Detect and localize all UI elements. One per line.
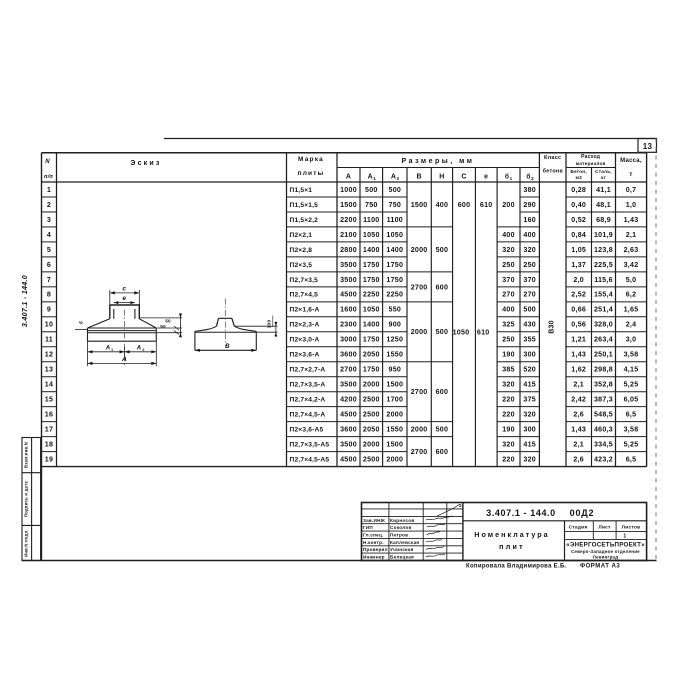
svg-text:2: 2 bbox=[531, 176, 534, 181]
svg-text:П2×2,8: П2×2,8 bbox=[290, 247, 313, 254]
svg-text:Учинская: Учинская bbox=[390, 547, 414, 552]
svg-text:2,1: 2,1 bbox=[626, 231, 637, 239]
svg-text:352,8: 352,8 bbox=[594, 381, 613, 389]
svg-text:430: 430 bbox=[523, 321, 536, 329]
svg-text:2050: 2050 bbox=[363, 426, 380, 434]
svg-text:п/п: п/п bbox=[44, 174, 53, 180]
svg-text:460,3: 460,3 bbox=[594, 426, 613, 434]
svg-text:2000: 2000 bbox=[386, 456, 403, 464]
svg-text:220: 220 bbox=[502, 396, 515, 404]
svg-text:4500: 4500 bbox=[340, 411, 357, 419]
svg-text:400: 400 bbox=[502, 231, 515, 239]
svg-text:10: 10 bbox=[45, 321, 53, 329]
svg-text:2,4: 2,4 bbox=[626, 321, 637, 329]
svg-text:бетона: бетона bbox=[543, 168, 564, 175]
svg-text:1,43: 1,43 bbox=[571, 426, 586, 434]
svg-text:500: 500 bbox=[436, 426, 449, 434]
svg-text:610: 610 bbox=[480, 201, 493, 209]
svg-text:2,6: 2,6 bbox=[573, 411, 584, 419]
svg-text:П2,7×4,5-А: П2,7×4,5-А bbox=[290, 412, 326, 419]
svg-text:50: 50 bbox=[160, 324, 166, 329]
svg-text:355: 355 bbox=[523, 336, 536, 344]
svg-text:320: 320 bbox=[502, 246, 515, 254]
svg-text:1100: 1100 bbox=[387, 216, 403, 224]
svg-text:600: 600 bbox=[436, 448, 449, 456]
svg-text:5,25: 5,25 bbox=[624, 381, 639, 389]
svg-text:400: 400 bbox=[523, 231, 536, 239]
svg-text:400: 400 bbox=[436, 201, 449, 209]
svg-text:415: 415 bbox=[523, 441, 536, 449]
svg-text:2,1: 2,1 bbox=[573, 441, 584, 449]
svg-text:290: 290 bbox=[523, 201, 536, 209]
svg-text:520: 520 bbox=[523, 366, 536, 374]
svg-text:270: 270 bbox=[502, 291, 515, 299]
svg-text:2,42: 2,42 bbox=[571, 396, 586, 404]
svg-text:115,6: 115,6 bbox=[594, 276, 613, 284]
svg-text:13: 13 bbox=[643, 142, 653, 151]
svg-text:Масса,: Масса, bbox=[620, 158, 642, 164]
svg-text:Северо-Западное отделение: Северо-Западное отделение bbox=[571, 549, 640, 554]
svg-text:320: 320 bbox=[502, 381, 515, 389]
svg-text:1550: 1550 bbox=[386, 426, 403, 434]
svg-text:3.407.1 - 144.0: 3.407.1 - 144.0 bbox=[20, 275, 29, 327]
svg-text:Гл.спец.: Гл.спец. bbox=[363, 532, 384, 537]
svg-text:A: A bbox=[391, 174, 396, 181]
svg-text:2000: 2000 bbox=[411, 246, 428, 254]
svg-text:Расход: Расход bbox=[581, 154, 601, 160]
svg-text:3.407.1 - 144.0: 3.407.1 - 144.0 bbox=[486, 508, 556, 518]
svg-text:П2×1,6-А: П2×1,6-А bbox=[290, 307, 320, 314]
svg-text:«ЭНЕРГОСЕТЬПРОЕКТ»: «ЭНЕРГОСЕТЬПРОЕКТ» bbox=[566, 542, 645, 549]
svg-text:1,65: 1,65 bbox=[624, 306, 639, 314]
svg-text:2500: 2500 bbox=[363, 411, 380, 419]
svg-text:1,05: 1,05 bbox=[571, 246, 586, 254]
svg-text:плиты: плиты bbox=[298, 170, 325, 177]
svg-text:225,5: 225,5 bbox=[594, 261, 613, 269]
svg-text:6,05: 6,05 bbox=[624, 396, 639, 404]
svg-text:4500: 4500 bbox=[340, 456, 357, 464]
svg-text:Листов: Листов bbox=[622, 525, 641, 531]
svg-text:220: 220 bbox=[502, 456, 515, 464]
svg-text:50: 50 bbox=[165, 319, 171, 324]
svg-text:2200: 2200 bbox=[340, 216, 357, 224]
svg-text:13: 13 bbox=[45, 366, 53, 374]
svg-text:1: 1 bbox=[47, 186, 51, 194]
svg-text:600: 600 bbox=[458, 201, 471, 209]
svg-text:2700: 2700 bbox=[411, 283, 428, 291]
svg-text:423,2: 423,2 bbox=[594, 456, 613, 464]
svg-text:Каплевская: Каплевская bbox=[390, 540, 419, 545]
svg-text:Лист: Лист bbox=[598, 525, 611, 531]
svg-text:5,0: 5,0 bbox=[626, 276, 637, 284]
svg-text:2: 2 bbox=[397, 176, 400, 181]
svg-text:387,3: 387,3 bbox=[594, 396, 613, 404]
svg-text:2500: 2500 bbox=[363, 396, 380, 404]
svg-text:190: 190 bbox=[502, 351, 515, 359]
svg-text:3,58: 3,58 bbox=[624, 351, 639, 359]
svg-text:1750: 1750 bbox=[363, 276, 380, 284]
svg-text:11: 11 bbox=[45, 336, 53, 344]
svg-text:Класс: Класс bbox=[544, 155, 561, 161]
svg-text:1700: 1700 bbox=[386, 396, 403, 404]
svg-text:1050: 1050 bbox=[363, 231, 380, 239]
svg-text:2,52: 2,52 bbox=[571, 291, 586, 299]
svg-text:H: H bbox=[439, 174, 444, 181]
svg-text:П2,7×4,2-А: П2,7×4,2-А bbox=[290, 397, 326, 404]
svg-text:e: e bbox=[484, 174, 488, 181]
svg-text:68,9: 68,9 bbox=[596, 216, 611, 224]
svg-text:500: 500 bbox=[436, 328, 449, 336]
svg-text:250: 250 bbox=[502, 336, 515, 344]
svg-text:т: т bbox=[629, 172, 632, 178]
svg-text:250: 250 bbox=[523, 261, 536, 269]
svg-text:415: 415 bbox=[523, 381, 536, 389]
svg-text:250: 250 bbox=[502, 261, 515, 269]
svg-text:П2×3,6-А5: П2×3,6-А5 bbox=[290, 427, 324, 434]
svg-text:00Д2: 00Д2 bbox=[570, 508, 595, 518]
svg-text:B: B bbox=[416, 174, 421, 181]
svg-text:П1,5×2,2: П1,5×2,2 bbox=[290, 217, 319, 224]
svg-text:В: В bbox=[225, 343, 230, 350]
svg-text:2700: 2700 bbox=[411, 388, 428, 396]
svg-text:14: 14 bbox=[45, 381, 53, 389]
svg-text:1,37: 1,37 bbox=[571, 261, 586, 269]
svg-text:1100: 1100 bbox=[363, 216, 379, 224]
svg-text:Стадия: Стадия bbox=[569, 525, 588, 531]
svg-text:1,21: 1,21 bbox=[571, 336, 586, 344]
svg-text:e: e bbox=[122, 295, 126, 302]
svg-text:2000: 2000 bbox=[411, 426, 428, 434]
svg-text:C: C bbox=[461, 174, 466, 181]
svg-text:П1,5×1: П1,5×1 bbox=[290, 187, 313, 194]
svg-text:2000: 2000 bbox=[363, 441, 380, 449]
svg-text:2050: 2050 bbox=[363, 351, 380, 359]
svg-text:17: 17 bbox=[45, 426, 53, 434]
svg-text:160: 160 bbox=[523, 216, 536, 224]
svg-text:1550: 1550 bbox=[386, 351, 403, 359]
svg-text:П2×3,6-А: П2×3,6-А bbox=[290, 352, 320, 359]
svg-text:ФОРМАТ А3: ФОРМАТ А3 bbox=[580, 564, 620, 570]
svg-text:1750: 1750 bbox=[386, 261, 403, 269]
svg-text:2500: 2500 bbox=[363, 456, 380, 464]
svg-text:4500: 4500 bbox=[340, 291, 357, 299]
svg-text:1000: 1000 bbox=[340, 186, 357, 194]
svg-text:8: 8 bbox=[47, 291, 51, 299]
svg-text:1050: 1050 bbox=[453, 328, 470, 336]
svg-text:328,0: 328,0 bbox=[594, 321, 613, 329]
svg-text:5: 5 bbox=[47, 246, 51, 254]
svg-text:П2×2,3-А: П2×2,3-А bbox=[290, 322, 320, 329]
svg-text:16: 16 bbox=[45, 411, 53, 419]
svg-text:320: 320 bbox=[523, 411, 536, 419]
svg-text:б: б bbox=[526, 173, 530, 181]
svg-text:Сталь,: Сталь, bbox=[595, 169, 612, 174]
svg-text:250,1: 250,1 bbox=[594, 351, 613, 359]
svg-text:550: 550 bbox=[389, 306, 402, 314]
svg-text:Номенклатура: Номенклатура bbox=[474, 530, 549, 539]
svg-text:3600: 3600 bbox=[340, 351, 357, 359]
svg-text:3500: 3500 bbox=[340, 381, 357, 389]
svg-text:3600: 3600 bbox=[340, 426, 357, 434]
svg-text:251,4: 251,4 bbox=[594, 306, 613, 314]
svg-text:1500: 1500 bbox=[386, 381, 403, 389]
svg-text:N: N bbox=[45, 159, 50, 165]
svg-text:Петров: Петров bbox=[390, 532, 408, 537]
svg-text:0,52: 0,52 bbox=[571, 216, 586, 224]
svg-text:Зав.ИНЖ: Зав.ИНЖ bbox=[363, 518, 386, 523]
svg-text:Эскиз: Эскиз bbox=[130, 160, 161, 167]
svg-text:2: 2 bbox=[47, 201, 51, 209]
svg-text:1400: 1400 bbox=[363, 321, 380, 329]
svg-text:500: 500 bbox=[523, 306, 536, 314]
svg-text:2000: 2000 bbox=[363, 381, 380, 389]
svg-text:3500: 3500 bbox=[340, 441, 357, 449]
svg-text:190: 190 bbox=[502, 426, 515, 434]
svg-text:12: 12 bbox=[45, 351, 53, 359]
svg-text:2000: 2000 bbox=[411, 328, 428, 336]
svg-text:2800: 2800 bbox=[340, 246, 357, 254]
svg-text:П2,7×4,5-А5: П2,7×4,5-А5 bbox=[290, 457, 330, 464]
svg-text:298,8: 298,8 bbox=[594, 366, 613, 374]
svg-text:кг: кг bbox=[601, 175, 606, 180]
svg-text:2000: 2000 bbox=[386, 411, 403, 419]
svg-text:123,8: 123,8 bbox=[594, 246, 613, 254]
svg-text:155,4: 155,4 bbox=[594, 291, 613, 299]
svg-text:1500: 1500 bbox=[386, 441, 403, 449]
svg-text:2100: 2100 bbox=[340, 231, 357, 239]
svg-text:600: 600 bbox=[436, 283, 449, 291]
svg-text:В30: В30 bbox=[549, 320, 556, 334]
svg-text:610: 610 bbox=[477, 328, 490, 336]
svg-text:548,5: 548,5 bbox=[594, 411, 613, 419]
svg-text:101,9: 101,9 bbox=[594, 231, 613, 239]
svg-text:900: 900 bbox=[389, 321, 402, 329]
svg-text:1600: 1600 bbox=[340, 306, 357, 314]
svg-text:A: A bbox=[346, 174, 351, 181]
svg-text:0,7: 0,7 bbox=[626, 186, 637, 194]
svg-text:270: 270 bbox=[523, 291, 536, 299]
svg-text:15: 15 bbox=[45, 396, 53, 404]
svg-text:1,43: 1,43 bbox=[624, 216, 639, 224]
svg-text:263,4: 263,4 bbox=[594, 336, 613, 344]
svg-text:19: 19 bbox=[45, 456, 53, 464]
svg-text:П2,7×3,5: П2,7×3,5 bbox=[290, 277, 319, 284]
svg-text:3500: 3500 bbox=[340, 276, 357, 284]
svg-text:375: 375 bbox=[523, 396, 536, 404]
svg-text:320: 320 bbox=[523, 456, 536, 464]
svg-text:1: 1 bbox=[510, 176, 513, 181]
svg-text:П2×3,5: П2×3,5 bbox=[290, 262, 313, 269]
svg-text:220: 220 bbox=[502, 411, 515, 419]
svg-text:6,5: 6,5 bbox=[626, 411, 637, 419]
svg-text:3000: 3000 bbox=[340, 336, 357, 344]
svg-text:П2,7×3,5-А: П2,7×3,5-А bbox=[290, 382, 326, 389]
svg-text:6,2: 6,2 bbox=[626, 291, 637, 299]
svg-text:400: 400 bbox=[502, 306, 515, 314]
svg-text:300: 300 bbox=[523, 426, 536, 434]
svg-text:320: 320 bbox=[502, 441, 515, 449]
svg-text:2700: 2700 bbox=[340, 366, 357, 374]
svg-text:Подпись и дата: Подпись и дата bbox=[23, 481, 28, 517]
svg-text:П2×3,0-А: П2×3,0-А bbox=[290, 337, 320, 344]
svg-text:385: 385 bbox=[502, 366, 515, 374]
svg-text:3,58: 3,58 bbox=[624, 426, 639, 434]
svg-text:4200: 4200 bbox=[340, 396, 357, 404]
svg-text:1750: 1750 bbox=[386, 276, 403, 284]
svg-text:370: 370 bbox=[502, 276, 515, 284]
svg-text:370: 370 bbox=[523, 276, 536, 284]
svg-text:320: 320 bbox=[523, 246, 536, 254]
svg-text:1750: 1750 bbox=[363, 261, 380, 269]
svg-text:4: 4 bbox=[47, 231, 51, 239]
svg-text:1050: 1050 bbox=[363, 306, 380, 314]
svg-text:1250: 1250 bbox=[386, 336, 403, 344]
svg-text:0,56: 0,56 bbox=[571, 321, 586, 329]
svg-text:б: б bbox=[505, 173, 509, 181]
svg-text:2,0: 2,0 bbox=[573, 276, 584, 284]
svg-text:41,1: 41,1 bbox=[596, 186, 611, 194]
svg-text:1050: 1050 bbox=[386, 231, 403, 239]
svg-text:Марка: Марка bbox=[298, 156, 324, 163]
svg-text:П2,7×3,5-А5: П2,7×3,5-А5 bbox=[290, 442, 330, 449]
svg-text:6,5: 6,5 bbox=[626, 456, 637, 464]
svg-text:6: 6 bbox=[47, 261, 51, 269]
svg-text:Соколов: Соколов bbox=[390, 525, 412, 530]
svg-text:1,62: 1,62 bbox=[571, 366, 586, 374]
svg-text:c: c bbox=[122, 285, 126, 292]
svg-text:500: 500 bbox=[436, 246, 449, 254]
svg-text:2300: 2300 bbox=[340, 321, 357, 329]
svg-text:1750: 1750 bbox=[363, 336, 380, 344]
svg-text:Н.контр.: Н.контр. bbox=[363, 540, 384, 545]
svg-text:Инв.N подл.: Инв.N подл. bbox=[23, 529, 28, 557]
svg-text:2250: 2250 bbox=[363, 291, 380, 299]
svg-text:А: А bbox=[121, 356, 127, 363]
svg-text:3: 3 bbox=[47, 216, 51, 224]
svg-text:1400: 1400 bbox=[386, 246, 403, 254]
svg-text:7: 7 bbox=[47, 276, 51, 284]
svg-text:300: 300 bbox=[523, 351, 536, 359]
svg-text:Белецкая: Белецкая bbox=[390, 554, 414, 559]
svg-text:0,66: 0,66 bbox=[571, 306, 586, 314]
svg-text:334,5: 334,5 bbox=[594, 441, 613, 449]
svg-text:0,40: 0,40 bbox=[571, 201, 586, 209]
svg-text:500: 500 bbox=[365, 186, 378, 194]
svg-text:плит: плит bbox=[499, 542, 525, 551]
svg-text:0,84: 0,84 bbox=[571, 231, 586, 239]
svg-text:Ленинград: Ленинград bbox=[593, 554, 619, 559]
svg-text:2,63: 2,63 bbox=[624, 246, 639, 254]
svg-text:Проверил: Проверил bbox=[363, 547, 388, 552]
svg-text:1,43: 1,43 bbox=[571, 351, 586, 359]
svg-text:1500: 1500 bbox=[411, 201, 428, 209]
svg-text:ГИП: ГИП bbox=[363, 525, 373, 530]
svg-text:750: 750 bbox=[389, 201, 402, 209]
svg-text:м3: м3 bbox=[575, 175, 582, 180]
svg-text:1: 1 bbox=[623, 534, 626, 540]
svg-text:750: 750 bbox=[365, 201, 378, 209]
svg-text:A: A bbox=[368, 174, 373, 181]
svg-text:100: 100 bbox=[267, 320, 273, 329]
svg-text:А: А bbox=[136, 344, 142, 351]
svg-text:Бетон,: Бетон, bbox=[571, 169, 587, 174]
svg-text:1750: 1750 bbox=[363, 366, 380, 374]
svg-text:500: 500 bbox=[389, 186, 402, 194]
svg-text:1500: 1500 bbox=[340, 201, 357, 209]
svg-text:2,6: 2,6 bbox=[573, 456, 584, 464]
svg-text:Инженер: Инженер bbox=[363, 554, 385, 559]
svg-text:2700: 2700 bbox=[411, 448, 428, 456]
svg-text:950: 950 bbox=[389, 366, 402, 374]
svg-text:325: 325 bbox=[502, 321, 515, 329]
svg-text:П1,5×1,5: П1,5×1,5 bbox=[290, 202, 319, 209]
svg-text:18: 18 bbox=[45, 441, 53, 449]
svg-text:Копировала Владимирова Е.Б.: Копировала Владимирова Е.Б. bbox=[466, 564, 567, 570]
svg-text:48,1: 48,1 bbox=[596, 201, 611, 209]
svg-text:Взам.инв.N: Взам.инв.N bbox=[23, 442, 28, 468]
svg-text:1,0: 1,0 bbox=[626, 201, 637, 209]
svg-text:1: 1 bbox=[373, 176, 376, 181]
svg-text:А: А bbox=[105, 344, 111, 351]
svg-text:Размеры, мм: Размеры, мм bbox=[402, 158, 475, 165]
svg-text:2,1: 2,1 bbox=[573, 381, 584, 389]
svg-text:4,15: 4,15 bbox=[624, 366, 639, 374]
svg-text:П2×2,1: П2×2,1 bbox=[290, 232, 313, 239]
svg-text:600: 600 bbox=[436, 388, 449, 396]
svg-text:2250: 2250 bbox=[386, 291, 403, 299]
svg-text:5,25: 5,25 bbox=[624, 441, 639, 449]
svg-text:200: 200 bbox=[502, 201, 515, 209]
svg-text:материалов: материалов bbox=[576, 161, 606, 166]
svg-text:3500: 3500 bbox=[340, 261, 357, 269]
svg-text:3,0: 3,0 bbox=[626, 336, 637, 344]
svg-text:Кирносов: Кирносов bbox=[390, 518, 415, 523]
svg-text:П2,7×2,7-А: П2,7×2,7-А bbox=[290, 367, 326, 374]
svg-text:1400: 1400 bbox=[363, 246, 380, 254]
svg-text:3,42: 3,42 bbox=[624, 261, 639, 269]
svg-text:380: 380 bbox=[523, 186, 536, 194]
svg-text:9: 9 bbox=[47, 306, 51, 314]
svg-text:0,28: 0,28 bbox=[571, 186, 586, 194]
svg-text:П2,7×4,5: П2,7×4,5 bbox=[290, 292, 319, 299]
